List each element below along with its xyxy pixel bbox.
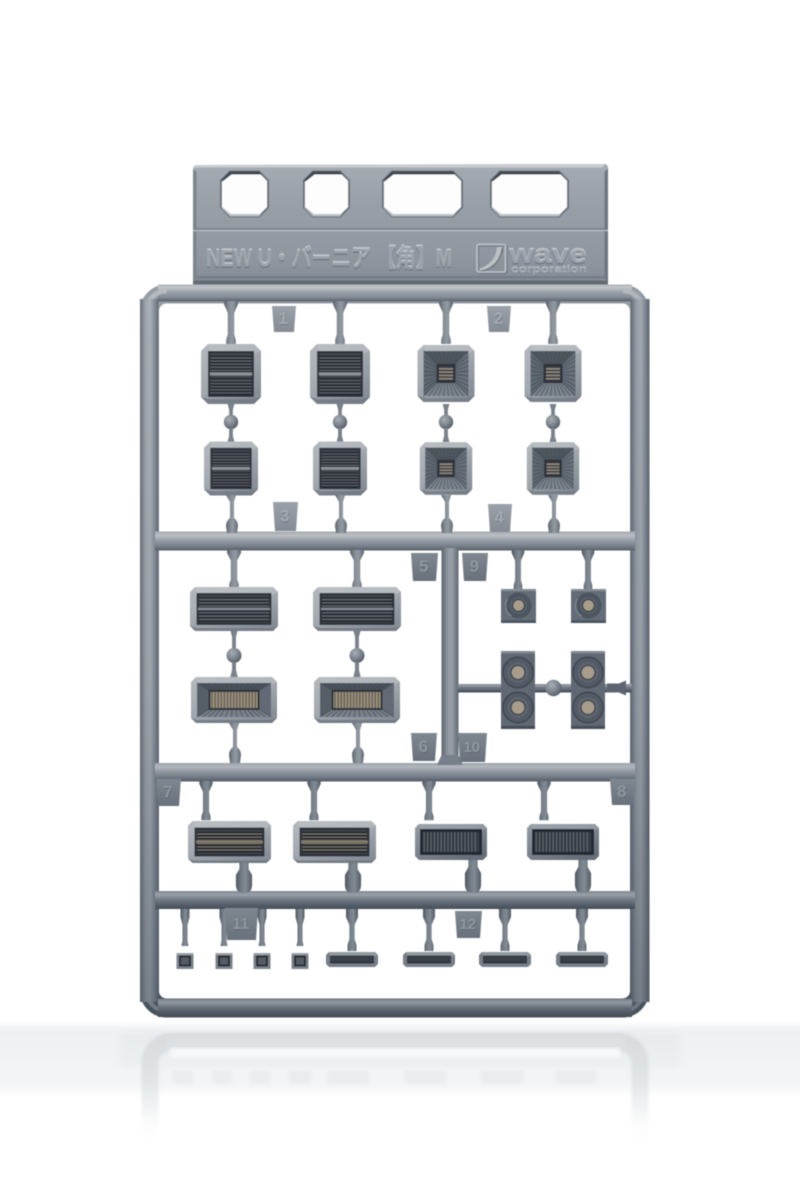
svg-text:11: 11 [232,916,249,933]
svg-text:12: 12 [459,916,476,933]
svg-text:9: 9 [470,557,479,576]
svg-text:NEW U・バーニア 【角】M: NEW U・バーニア 【角】M [206,245,452,273]
svg-text:7: 7 [163,783,172,802]
svg-text:10: 10 [463,739,480,756]
svg-text:6: 6 [419,737,428,756]
svg-text:4: 4 [495,508,505,527]
svg-text:1: 1 [279,309,288,328]
svg-text:5: 5 [419,557,428,576]
svg-text:8: 8 [617,782,626,801]
svg-text:3: 3 [280,507,289,526]
svg-text:corporation: corporation [511,264,587,276]
svg-text:2: 2 [494,309,503,328]
